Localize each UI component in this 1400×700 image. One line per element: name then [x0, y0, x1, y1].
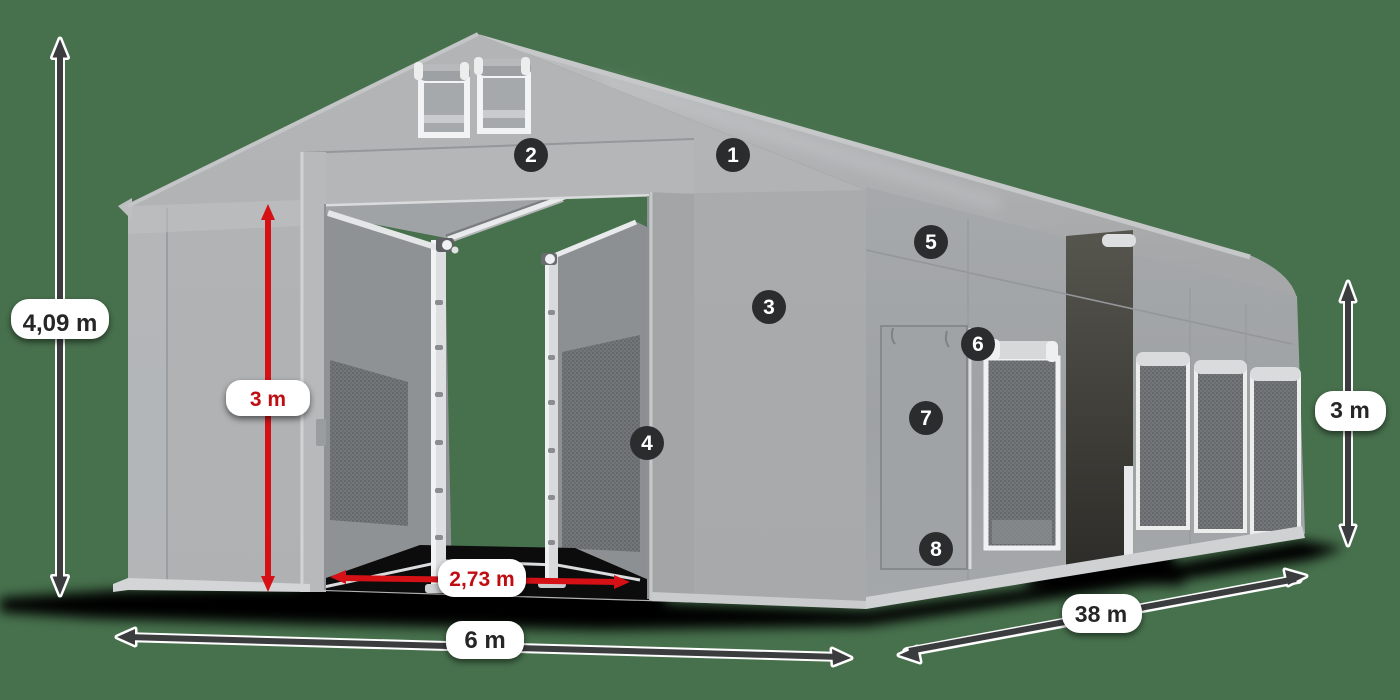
svg-text:2: 2: [525, 144, 537, 167]
svg-text:8: 8: [930, 538, 942, 561]
svg-text:6: 6: [972, 333, 984, 356]
svg-text:4: 4: [641, 432, 653, 455]
svg-text:1: 1: [727, 144, 739, 167]
svg-text:5: 5: [925, 231, 937, 254]
svg-text:6 m: 6 m: [464, 627, 505, 654]
svg-text:7: 7: [920, 407, 932, 430]
svg-text:2,73 m: 2,73 m: [449, 568, 514, 591]
svg-text:38 m: 38 m: [1075, 601, 1127, 627]
svg-text:3: 3: [763, 296, 775, 319]
svg-text:3 m: 3 m: [250, 388, 286, 411]
svg-text:4,09 m: 4,09 m: [23, 310, 98, 337]
svg-text:3 m: 3 m: [1330, 397, 1370, 423]
